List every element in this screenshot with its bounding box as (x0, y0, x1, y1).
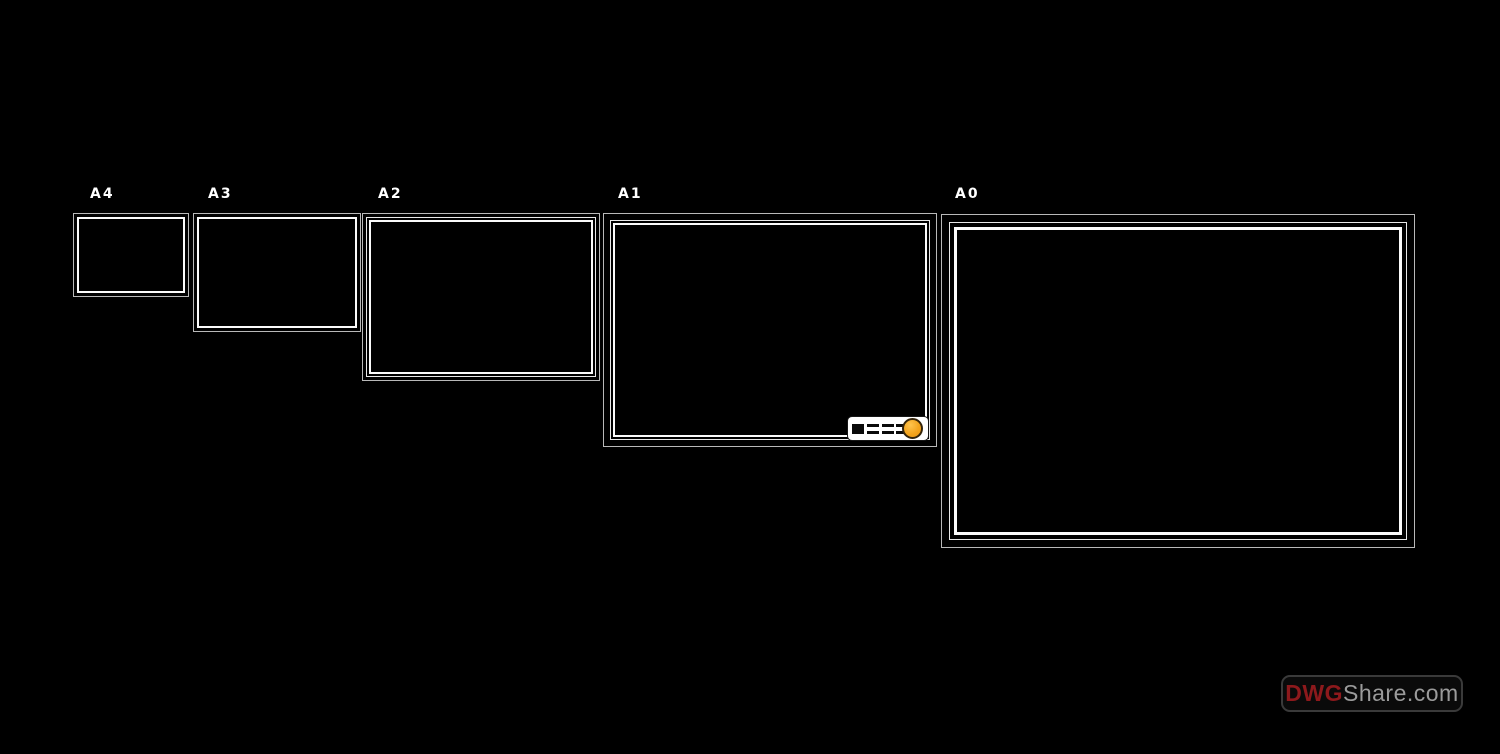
frame-inner-border (954, 227, 1402, 535)
title-block-square-icon (852, 424, 864, 434)
paper-frame-a2 (362, 213, 600, 381)
paper-frame-a4 (73, 213, 189, 297)
dash-icon (867, 424, 879, 427)
label-a0: A0 (955, 186, 980, 202)
frame-inner-border (369, 220, 593, 374)
dash-icon (882, 424, 894, 427)
label-a4: A4 (90, 186, 115, 202)
cad-canvas: A4 A3 A2 A1 A0 (0, 0, 1500, 754)
orange-dot-icon (902, 418, 923, 439)
watermark-suffix: Share.com (1343, 682, 1459, 705)
paper-frame-a1 (603, 213, 937, 447)
frame-inner-border (197, 217, 357, 328)
frame-inner-border (77, 217, 185, 293)
dash-icon (867, 431, 879, 434)
label-a3: A3 (208, 186, 233, 202)
watermark-prefix: DWG (1285, 682, 1343, 705)
dash-icon (882, 431, 894, 434)
watermark-badge: DWGShare.com (1281, 675, 1463, 712)
paper-frame-a0 (941, 214, 1415, 548)
paper-frame-a3 (193, 213, 361, 332)
frame-inner-border (613, 223, 927, 437)
title-block-dash-group (867, 424, 879, 434)
title-block (848, 417, 928, 440)
title-block-dash-group (882, 424, 894, 434)
label-a1: A1 (618, 186, 643, 202)
label-a2: A2 (378, 186, 403, 202)
